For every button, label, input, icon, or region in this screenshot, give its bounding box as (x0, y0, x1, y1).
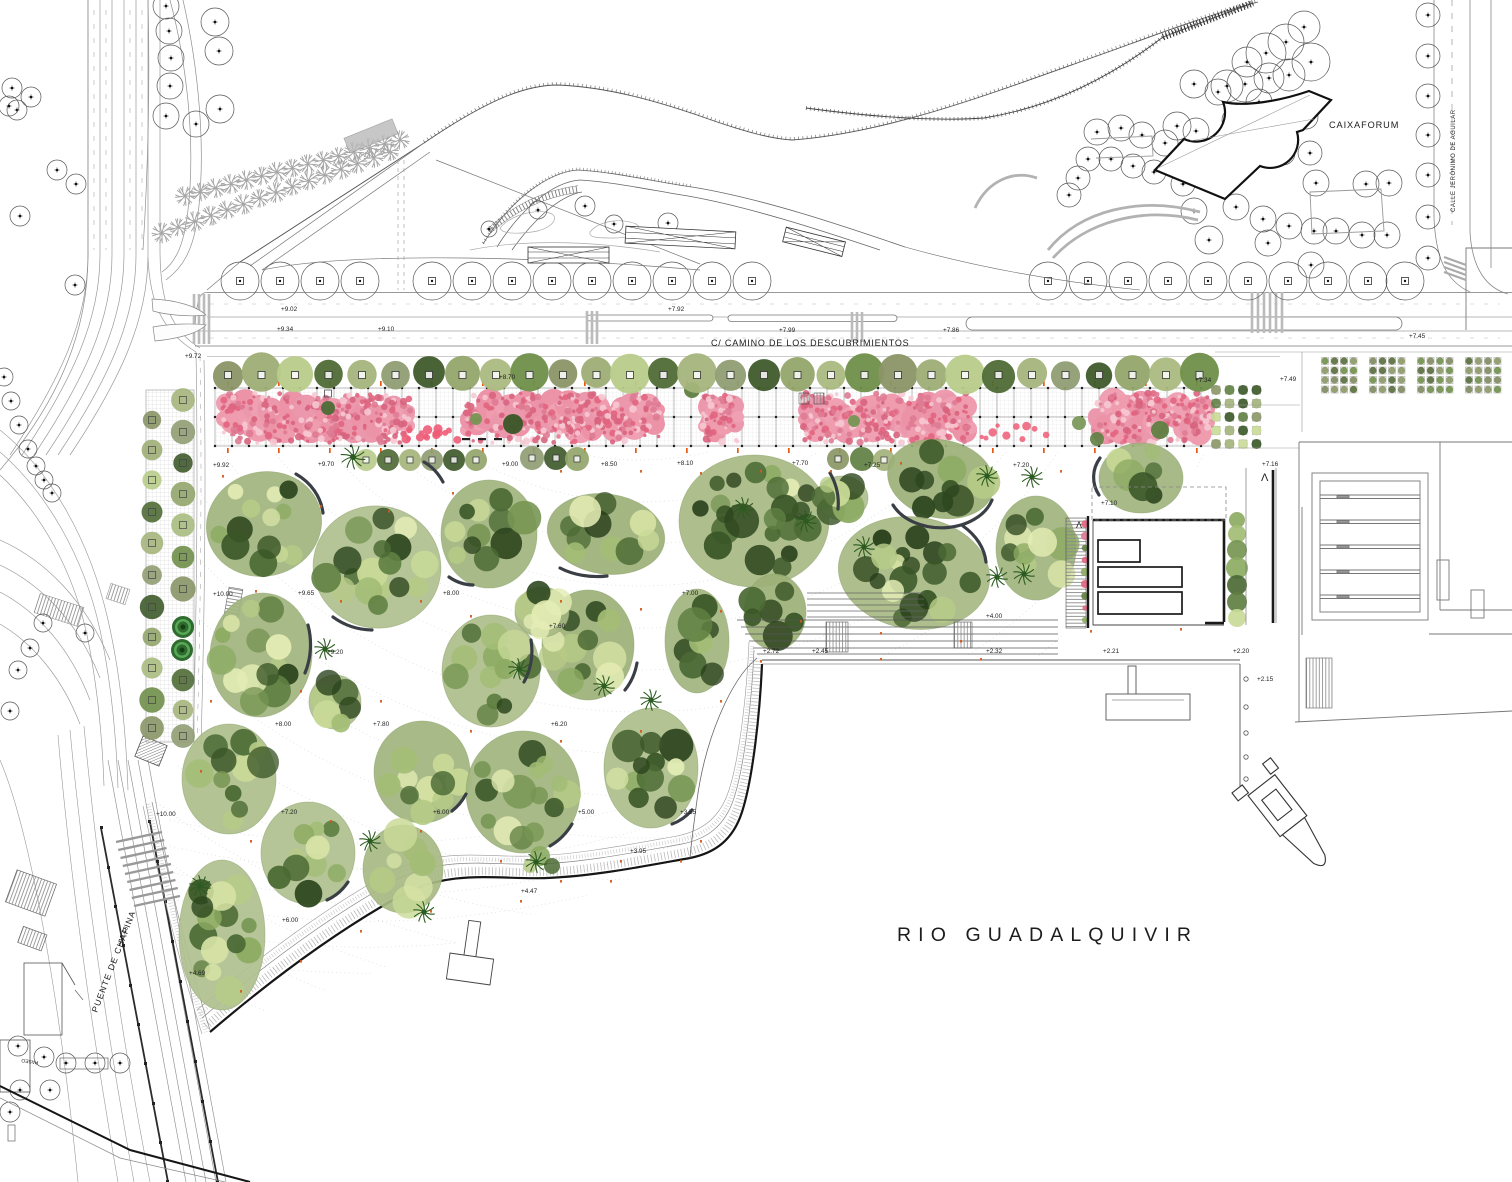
svg-text:CALLE JERÓNIMO DE AGUILAR: CALLE JERÓNIMO DE AGUILAR (1450, 109, 1457, 212)
svg-text:+9.92: +9.92 (213, 462, 230, 469)
svg-text:+9.00: +9.00 (502, 461, 519, 468)
svg-text:+2.72: +2.72 (763, 648, 780, 655)
svg-text:+7.34: +7.34 (1195, 377, 1212, 384)
svg-text:+7.86: +7.86 (943, 327, 960, 334)
svg-text:+9.10: +9.10 (378, 326, 395, 333)
svg-text:+4.69: +4.69 (189, 970, 206, 977)
svg-text:+7.80: +7.80 (373, 721, 390, 728)
svg-text:+6.00: +6.00 (433, 809, 450, 816)
svg-text:Λ: Λ (1261, 472, 1269, 484)
svg-text:+8.00: +8.00 (443, 590, 460, 597)
svg-text:C/ CAMINO DE LOS DESCUBRIMIENT: C/ CAMINO DE LOS DESCUBRIMIENTOS (711, 338, 909, 348)
svg-text:+8.50: +8.50 (601, 461, 618, 468)
svg-text:+7.70: +7.70 (792, 460, 809, 467)
svg-text:+7.00: +7.00 (682, 590, 699, 597)
svg-text:+7.20: +7.20 (1013, 462, 1030, 469)
svg-text:+9.72: +9.72 (185, 353, 202, 360)
svg-text:+5.00: +5.00 (578, 809, 595, 816)
svg-text:+7.49: +7.49 (1280, 376, 1297, 383)
svg-text:+9.20: +9.20 (327, 649, 344, 656)
svg-text:+3.95: +3.95 (630, 848, 647, 855)
svg-text:+9.02: +9.02 (281, 306, 298, 313)
svg-text:+7.99: +7.99 (779, 327, 796, 334)
svg-text:+4.00: +4.00 (986, 613, 1003, 620)
svg-text:+7.16: +7.16 (1262, 461, 1279, 468)
svg-text:+4.47: +4.47 (521, 888, 538, 895)
svg-text:+7.60: +7.60 (549, 623, 566, 630)
svg-text:+10.00: +10.00 (156, 811, 176, 818)
svg-text:+9.70: +9.70 (318, 461, 335, 468)
svg-text:+3.55: +3.55 (680, 809, 697, 816)
svg-text:+8.70: +8.70 (499, 374, 516, 381)
svg-text:+6.20: +6.20 (551, 721, 568, 728)
svg-text:+6.00: +6.00 (282, 917, 299, 924)
svg-text:+8.00: +8.00 (275, 721, 292, 728)
svg-text:Λ: Λ (1076, 520, 1082, 530)
svg-text:+7.10: +7.10 (1101, 500, 1118, 507)
svg-text:+7.45: +7.45 (1409, 333, 1426, 340)
svg-text:+9.65: +9.65 (298, 590, 315, 597)
svg-text:+10.00: +10.00 (213, 591, 233, 598)
svg-text:+2.32: +2.32 (986, 648, 1003, 655)
svg-text:+7.20: +7.20 (281, 809, 298, 816)
svg-text:+8.10: +8.10 (677, 460, 694, 467)
svg-text:+2.20: +2.20 (1233, 648, 1250, 655)
svg-text:CAIXAFORUM: CAIXAFORUM (1329, 120, 1399, 130)
svg-text:+2.45: +2.45 (812, 648, 829, 655)
svg-text:+7.25: +7.25 (864, 462, 881, 469)
svg-text:+2.21: +2.21 (1103, 648, 1120, 655)
svg-text:+2.15: +2.15 (1257, 676, 1274, 683)
svg-text:+7.92: +7.92 (668, 306, 685, 313)
svg-text:+9.34: +9.34 (277, 326, 294, 333)
svg-text:RIO GUADALQUIVIR: RIO GUADALQUIVIR (897, 924, 1198, 946)
